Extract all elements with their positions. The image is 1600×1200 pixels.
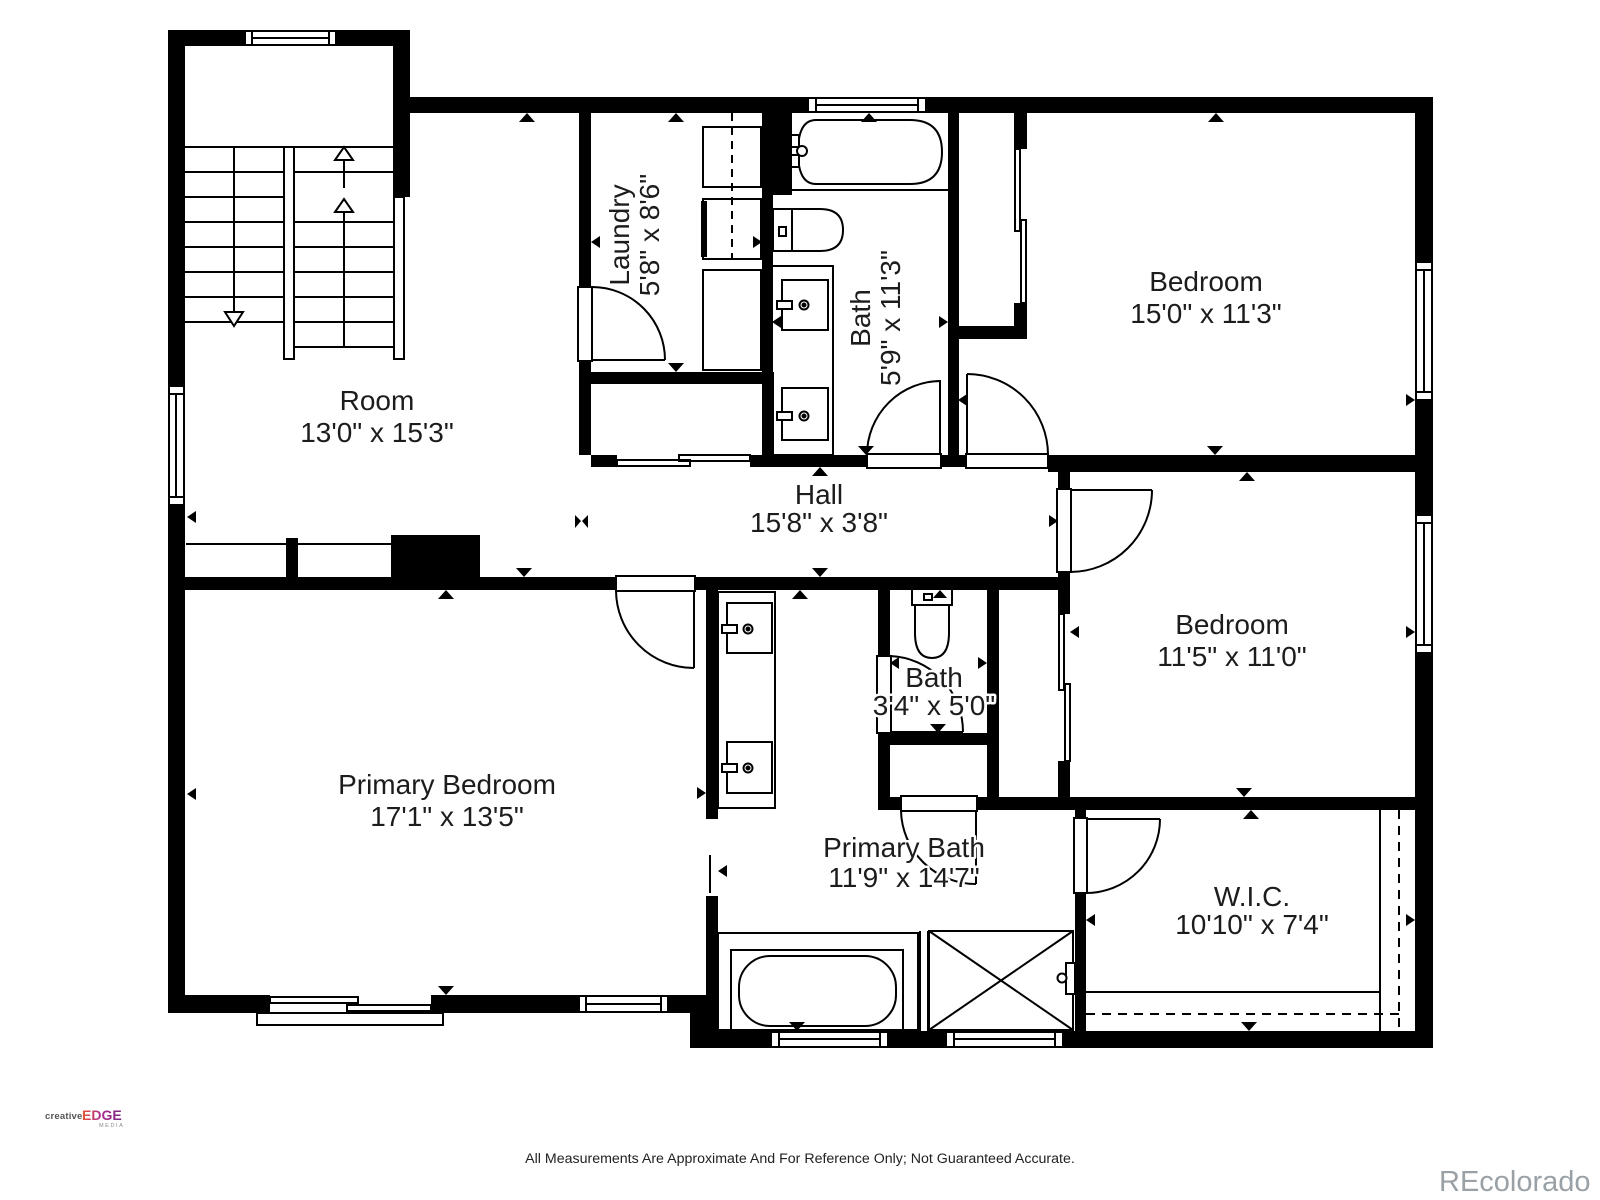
svg-text:Bedroom: Bedroom bbox=[1149, 266, 1263, 297]
svg-text:Primary Bedroom: Primary Bedroom bbox=[338, 769, 556, 800]
svg-text:11'5" x 11'0": 11'5" x 11'0" bbox=[1157, 641, 1306, 672]
svg-text:11'9" x 14'7": 11'9" x 14'7" bbox=[828, 862, 979, 893]
svg-text:EDGE: EDGE bbox=[82, 1107, 122, 1123]
svg-text:Laundry: Laundry bbox=[604, 184, 635, 285]
svg-text:10'10" x 7'4": 10'10" x 7'4" bbox=[1175, 909, 1329, 940]
svg-text:15'8" x 3'8": 15'8" x 3'8" bbox=[750, 507, 888, 538]
svg-text:13'0" x 15'3": 13'0" x 15'3" bbox=[300, 417, 454, 448]
svg-text:15'0" x 11'3": 15'0" x 11'3" bbox=[1130, 298, 1281, 329]
svg-text:All Measurements Are Approxima: All Measurements Are Approximate And For… bbox=[525, 1151, 1075, 1167]
svg-text:Bath: Bath bbox=[905, 662, 963, 693]
svg-text:Hall: Hall bbox=[795, 479, 843, 510]
svg-text:Room: Room bbox=[340, 385, 415, 416]
svg-text:3'4" x 5'0": 3'4" x 5'0" bbox=[873, 690, 995, 721]
svg-text:MEDIA: MEDIA bbox=[99, 1123, 124, 1129]
svg-text:Bedroom: Bedroom bbox=[1175, 609, 1289, 640]
svg-text:W.I.C.: W.I.C. bbox=[1214, 881, 1290, 912]
svg-text:REcolorado: REcolorado bbox=[1439, 1166, 1591, 1198]
svg-text:creative: creative bbox=[45, 1111, 83, 1122]
svg-text:5'9" x 11'3": 5'9" x 11'3" bbox=[875, 250, 906, 386]
svg-text:Bath: Bath bbox=[845, 289, 876, 347]
svg-text:Primary Bath: Primary Bath bbox=[823, 832, 985, 863]
svg-text:17'1" x 13'5": 17'1" x 13'5" bbox=[370, 801, 524, 832]
svg-text:5'8" x 8'6": 5'8" x 8'6" bbox=[634, 174, 665, 296]
